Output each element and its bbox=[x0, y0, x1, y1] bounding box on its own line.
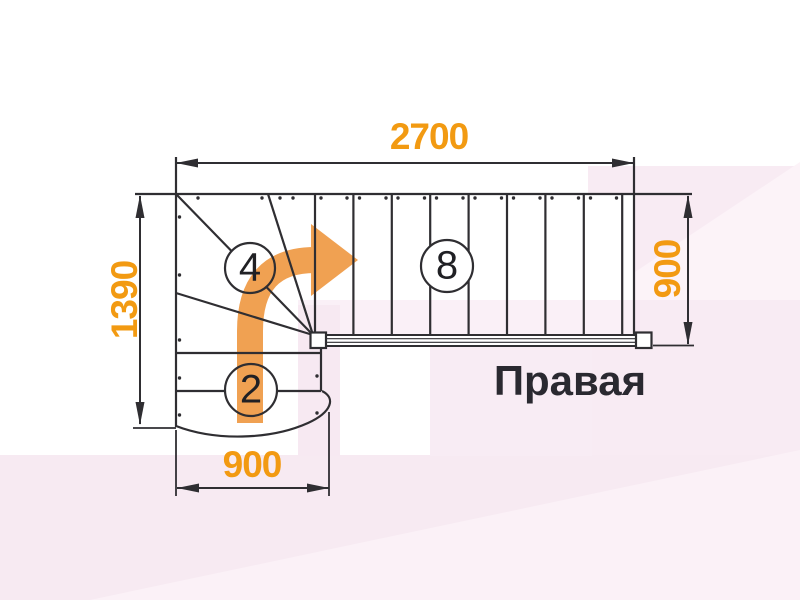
dimension-top bbox=[176, 159, 634, 168]
end-post bbox=[636, 333, 652, 349]
stringer-beam bbox=[311, 333, 695, 349]
plan-title: Правая bbox=[494, 357, 646, 405]
newel-post bbox=[311, 333, 327, 349]
dimension-value-top: 2700 bbox=[390, 116, 468, 158]
dimension-value-right: 900 bbox=[647, 240, 689, 299]
staircase-plan-page: 2700 1390 900 900 4 8 2 Правая bbox=[0, 0, 800, 600]
lower-flight-step-count: 2 bbox=[240, 368, 262, 413]
upper-flight-step-count: 8 bbox=[436, 244, 458, 289]
winder-step-count: 4 bbox=[239, 246, 261, 291]
dimension-value-bottom: 900 bbox=[223, 444, 282, 486]
dimension-value-left: 1390 bbox=[104, 261, 146, 339]
